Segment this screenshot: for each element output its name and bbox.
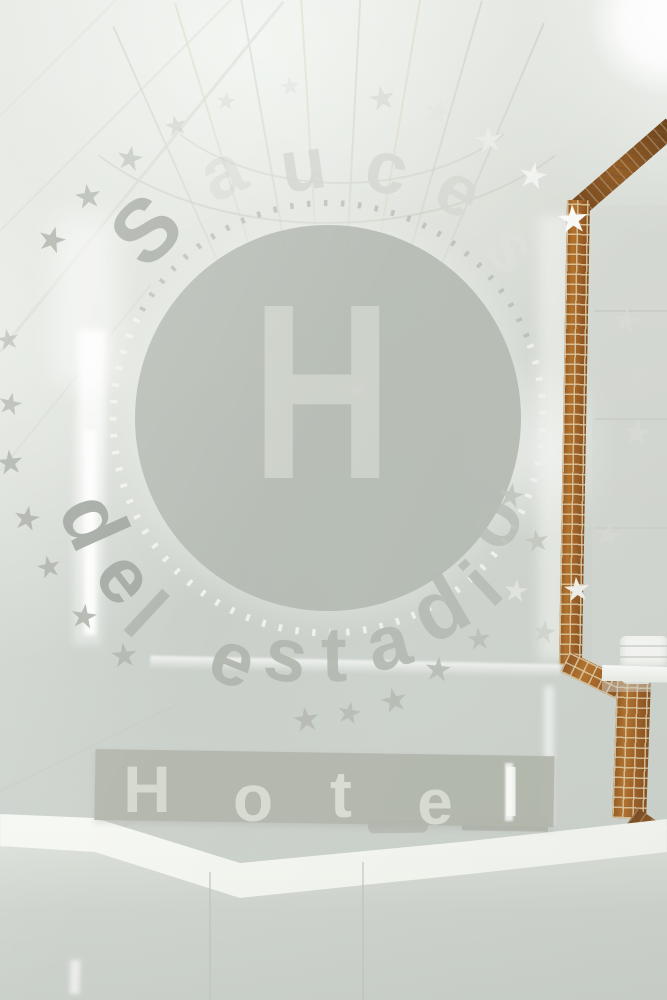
photo-frosted-glass-hotel-logo: H Sauces delestadio ★★★★★★★★★★★★★★★★★★★★… [0, 0, 667, 1000]
logo-letter-h: H [252, 267, 393, 517]
hotel-banner [94, 749, 554, 827]
